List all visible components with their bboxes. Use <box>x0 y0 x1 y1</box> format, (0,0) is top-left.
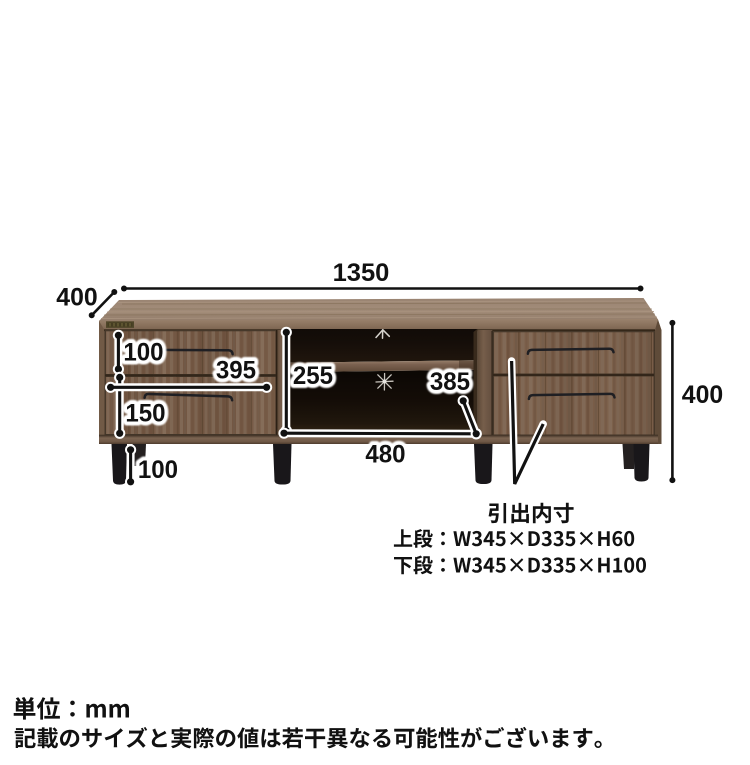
svg-text:100: 100 <box>123 339 163 367</box>
svg-text:1350: 1350 <box>333 259 390 287</box>
svg-text:100: 100 <box>138 456 178 484</box>
svg-text:400: 400 <box>56 284 97 312</box>
svg-text:395: 395 <box>216 357 256 385</box>
svg-text:255: 255 <box>293 362 333 390</box>
svg-text:385: 385 <box>430 368 470 396</box>
svg-text:480: 480 <box>365 441 405 469</box>
svg-text:150: 150 <box>125 400 165 428</box>
svg-text:400: 400 <box>682 381 723 409</box>
